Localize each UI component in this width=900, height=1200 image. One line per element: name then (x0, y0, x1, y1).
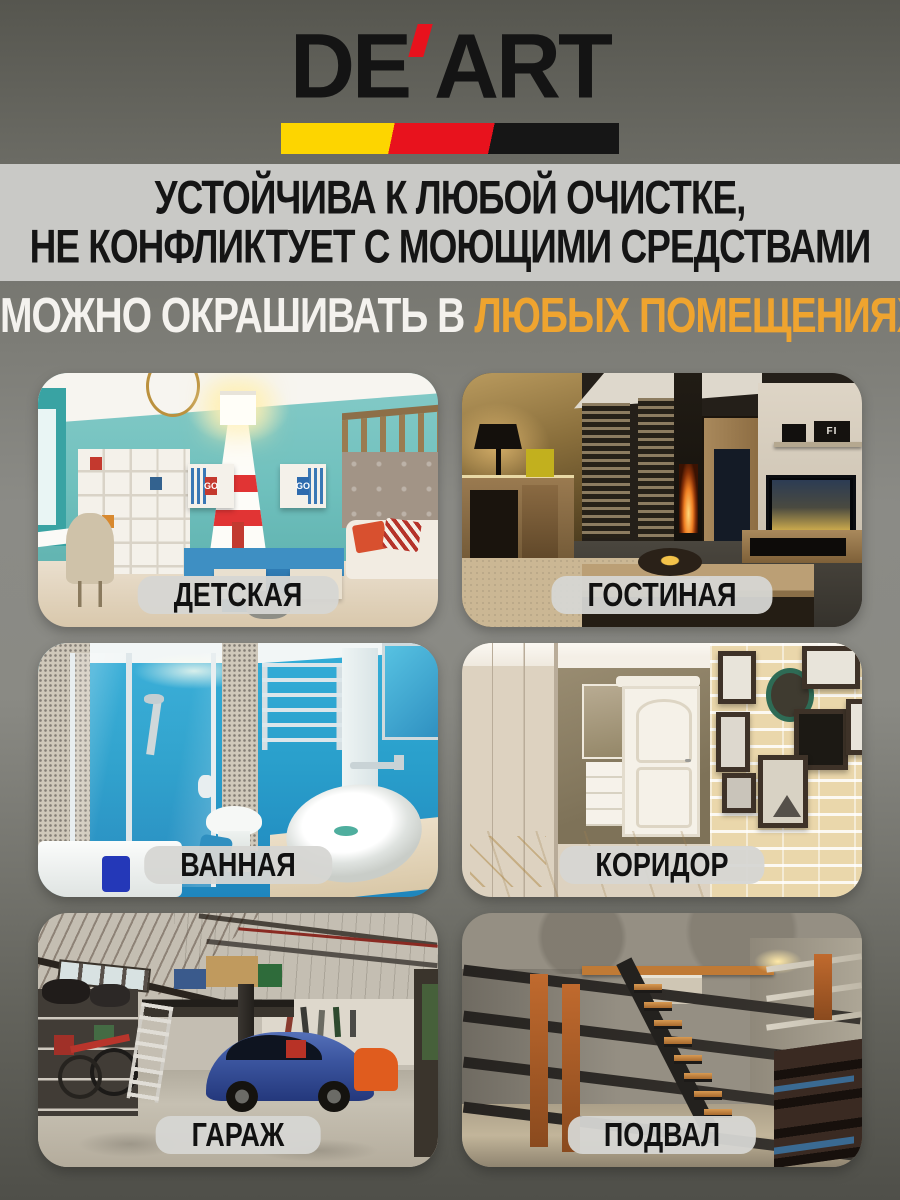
rooms-grid: GO GO ДЕТСКАЯ (38, 373, 862, 1167)
claims-banner: УСТОЙЧИВА К ЛЮБОЙ ОЧИСТКЕ, НЕ КОНФЛИКТУЕ… (0, 164, 900, 281)
shelf-letters: FI (814, 421, 850, 441)
picture-frame (722, 773, 756, 813)
logo-part-art: ART (434, 21, 610, 113)
decor-shape (422, 984, 438, 1060)
door-handle (685, 759, 691, 762)
car-wheel (226, 1081, 258, 1113)
tv (766, 475, 856, 537)
room-label: ПОДВАЛ (604, 1116, 720, 1155)
decor-bowl (638, 548, 702, 576)
window (38, 409, 56, 526)
room-label-pill: КОРИДОР (559, 846, 764, 884)
decor-shape (150, 477, 162, 490)
room-label: КОРИДОР (595, 846, 728, 885)
shower-head (144, 694, 164, 704)
window-blinds (582, 403, 630, 538)
room-label-pill: ГОСТИНАЯ (551, 576, 772, 614)
stair-step (694, 1091, 722, 1097)
window-blinds (638, 398, 674, 540)
stair-step (664, 1037, 692, 1043)
door-panel (636, 767, 692, 828)
decor-shape (522, 485, 558, 564)
decor-shape (782, 424, 806, 442)
storage-box (206, 956, 258, 986)
stair-step (644, 1002, 672, 1008)
mirror (382, 643, 438, 740)
subtitle-white-text: МОЖНО ОКРАШИВАТЬ В (0, 290, 464, 344)
picture-frame (718, 651, 756, 704)
planter (526, 449, 554, 477)
decor-shape (750, 538, 846, 556)
room-card-kids: GO GO ДЕТСКАЯ (38, 373, 438, 627)
brand-logo-text: DEART (0, 22, 900, 112)
fireplace (679, 464, 698, 533)
decor-shape (470, 490, 518, 559)
wall-shelf (774, 442, 862, 448)
storage-box (258, 964, 282, 987)
room-card-garage: ГАРАЖ (38, 913, 438, 1167)
decor-shape (90, 457, 102, 470)
room-label: ВАННАЯ (180, 846, 296, 885)
crown-molding (558, 656, 718, 669)
brand-stripe (281, 123, 619, 154)
room-label: ГАРАЖ (192, 1116, 285, 1155)
stair-step (654, 1020, 682, 1026)
decor-shape (773, 795, 801, 817)
room-label-pill: ДЕТСКАЯ (138, 576, 339, 614)
car-wheel (318, 1081, 350, 1113)
stair-step (674, 1055, 702, 1061)
room-card-corridor: КОРИДОР (462, 643, 862, 897)
logo-part-de: DE (290, 21, 409, 113)
lighthouse-lantern (220, 391, 256, 425)
hanging-cabinet: GO (188, 464, 234, 507)
claims-line-2: НЕ КОНФЛИКТУЕТ С МОЮЩИМИ СРЕДСТВАМИ (30, 220, 871, 274)
shelf-post (530, 974, 548, 1147)
room-label: ГОСТИНАЯ (587, 576, 736, 615)
lamp (474, 424, 522, 449)
subtitle: МОЖНО ОКРАШИВАТЬ ВЛЮБЫХ ПОМЕЩЕНИЯХ (0, 295, 900, 339)
go-box-label: GO (297, 477, 310, 494)
room-label-pill: ПОДВАЛ (568, 1116, 756, 1154)
storage-box (174, 969, 206, 989)
claims-line-1: УСТОЙЧИВА К ЛЮБОЙ ОЧИСТКЕ, (155, 171, 746, 225)
snow-blower (354, 1048, 398, 1091)
door-panel (636, 699, 692, 763)
decor-shape (78, 581, 102, 606)
bicycle-wheel (58, 1055, 102, 1099)
decor-shape (496, 449, 501, 474)
drawer-chest (586, 762, 622, 826)
wall-mirror (582, 684, 626, 759)
room-card-living: FI ГОСТИНАЯ (462, 373, 862, 627)
towel-rail (262, 663, 342, 749)
pillow (382, 518, 422, 553)
room-label-pill: ГАРАЖ (156, 1116, 321, 1154)
decor-shape (334, 826, 358, 836)
paper-holder (198, 775, 214, 798)
shelf-post (814, 954, 832, 1020)
room-card-basement: ПОДВАЛ (462, 913, 862, 1167)
stair-step (684, 1073, 712, 1079)
room-label: ДЕТСКАЯ (174, 576, 303, 615)
tufted-headboard (342, 452, 438, 528)
decor-shape (90, 984, 130, 1007)
picture-frame (846, 699, 862, 755)
subtitle-accent-text: ЛЮБЫХ ПОМЕЩЕНИЯХ (474, 290, 900, 344)
door (622, 686, 700, 837)
towel (102, 856, 130, 892)
decor-shape (286, 1040, 306, 1058)
picture-frame (758, 755, 808, 829)
picture-frame (802, 646, 860, 689)
tv-screen (772, 480, 849, 529)
picture-frame (716, 712, 750, 773)
brand-logo: DEART (0, 22, 900, 154)
decor-shape (394, 755, 404, 770)
logo-apostrophe (408, 24, 432, 57)
go-box-label: GO (205, 477, 218, 494)
room-label-pill: ВАННАЯ (144, 846, 332, 884)
chair (66, 513, 114, 584)
orange-beam (582, 966, 774, 975)
stair-step (704, 1109, 732, 1115)
hanging-cabinet: GO (280, 464, 326, 507)
stair-step (634, 984, 662, 990)
room-card-bathroom: ВАННАЯ (38, 643, 438, 897)
decor-shape (42, 979, 90, 1004)
hung-tool (350, 1010, 356, 1038)
